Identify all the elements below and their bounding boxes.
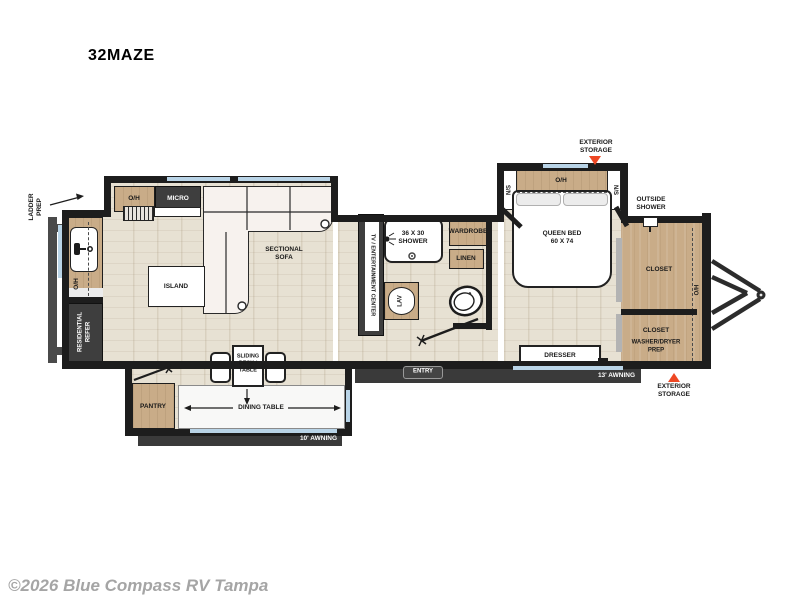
cooktop — [123, 206, 154, 221]
window-kitchen-1 — [167, 177, 230, 181]
front-overhead-label: O/H — [694, 285, 702, 296]
closet-bottom-label: CLOSET — [643, 327, 669, 335]
wall-top-right — [621, 216, 705, 223]
wall-bath-bottom — [453, 323, 492, 329]
exterior-storage-top-label: EXTERIOR STORAGE — [579, 139, 612, 155]
wall-bed-slide-left — [497, 163, 504, 222]
wall-refer-cap — [68, 297, 103, 303]
closet-door-upper — [616, 238, 622, 302]
tv-center-label: TV / ENTERTAINMENT CENTER — [369, 234, 376, 316]
pillow-left — [516, 193, 561, 206]
rear-ladder-bar — [48, 217, 57, 363]
wardrobe-label: WARDROBE — [449, 228, 488, 236]
kitchen-overhead-label: O/H — [128, 195, 140, 203]
exterior-storage-marker-top — [589, 156, 601, 165]
bedroom-overhead-label: O/H — [555, 177, 567, 185]
wall-dinette-slide-left — [125, 369, 132, 436]
outside-shower-fixture — [643, 217, 658, 227]
linen-label: LINEN — [456, 255, 476, 263]
wall-top-left — [62, 210, 110, 217]
pillow-right — [563, 193, 608, 206]
wall-bed-slide-right — [621, 163, 628, 223]
hitch-coupler — [757, 291, 766, 300]
window-rear — [58, 225, 62, 278]
sliding-desk-label: SLIDING DESK / TABLE — [237, 354, 259, 375]
awning-13ft-label: 13' AWNING — [545, 372, 635, 379]
counter-edge-dashed — [88, 222, 89, 296]
refrigerator-label: RESIDENTIAL REFER — [78, 312, 93, 352]
dresser-label: DRESSER — [544, 352, 575, 360]
ladder-prep-label: LADDER PREP — [28, 193, 44, 220]
washer-dryer-label: WASHER/DRYER PREP — [632, 340, 681, 355]
wall-rear — [62, 210, 69, 369]
closet-top-label: CLOSET — [646, 266, 672, 274]
closet-door-lower — [616, 314, 622, 352]
exterior-storage-marker-front — [668, 373, 680, 382]
dealer-watermark: ©2026 Blue Compass RV Tampa — [8, 576, 268, 596]
sofa-label: SECTIONAL SOFA — [265, 246, 303, 262]
window-bedroom — [543, 164, 588, 168]
window-kitchen-2 — [238, 177, 330, 181]
closet-overhead-dashed — [692, 228, 693, 361]
nightstand-right-label: N/S — [610, 185, 618, 195]
window-dresser — [513, 366, 623, 370]
outside-shower-label: OUTSIDE SHOWER — [636, 196, 665, 212]
microwave-label: MICRO — [167, 195, 189, 203]
sofa-horizontal-section — [203, 186, 333, 232]
counter-overhead-label: O/H — [73, 278, 81, 290]
dining-table-label: DINING TABLE — [238, 404, 284, 412]
window-dinette — [190, 429, 337, 433]
exterior-storage-front-label: EXTERIOR STORAGE — [657, 383, 690, 399]
entry-label: ENTRY — [413, 368, 433, 376]
queen-bed-label: QUEEN BED 60 X 74 — [543, 230, 582, 246]
wall-closet-divider — [621, 309, 697, 315]
sofa-vertical-section — [203, 231, 249, 314]
overhead-dashed-edge — [517, 192, 607, 193]
ladder-prep-arrow — [50, 194, 84, 206]
wall-front — [702, 213, 711, 369]
nightstand-left-label: N/S — [506, 185, 514, 195]
kitchen-sink — [70, 227, 98, 272]
shower-label: 36 X 30 SHOWER — [398, 230, 427, 246]
island-label: ISLAND — [164, 283, 188, 291]
pantry-label: PANTRY — [140, 403, 166, 411]
awning-10ft-label: 10' AWNING — [232, 435, 337, 442]
wall-top-mid — [331, 215, 503, 222]
floorplan-page: 32MAZE — [0, 0, 800, 600]
trailer-hitch — [712, 261, 760, 329]
lav-label: LAV — [397, 295, 405, 307]
window-dinette-side — [346, 390, 350, 422]
floorplan-title: 32MAZE — [88, 47, 155, 65]
kitchen-counter-strip — [154, 207, 201, 217]
